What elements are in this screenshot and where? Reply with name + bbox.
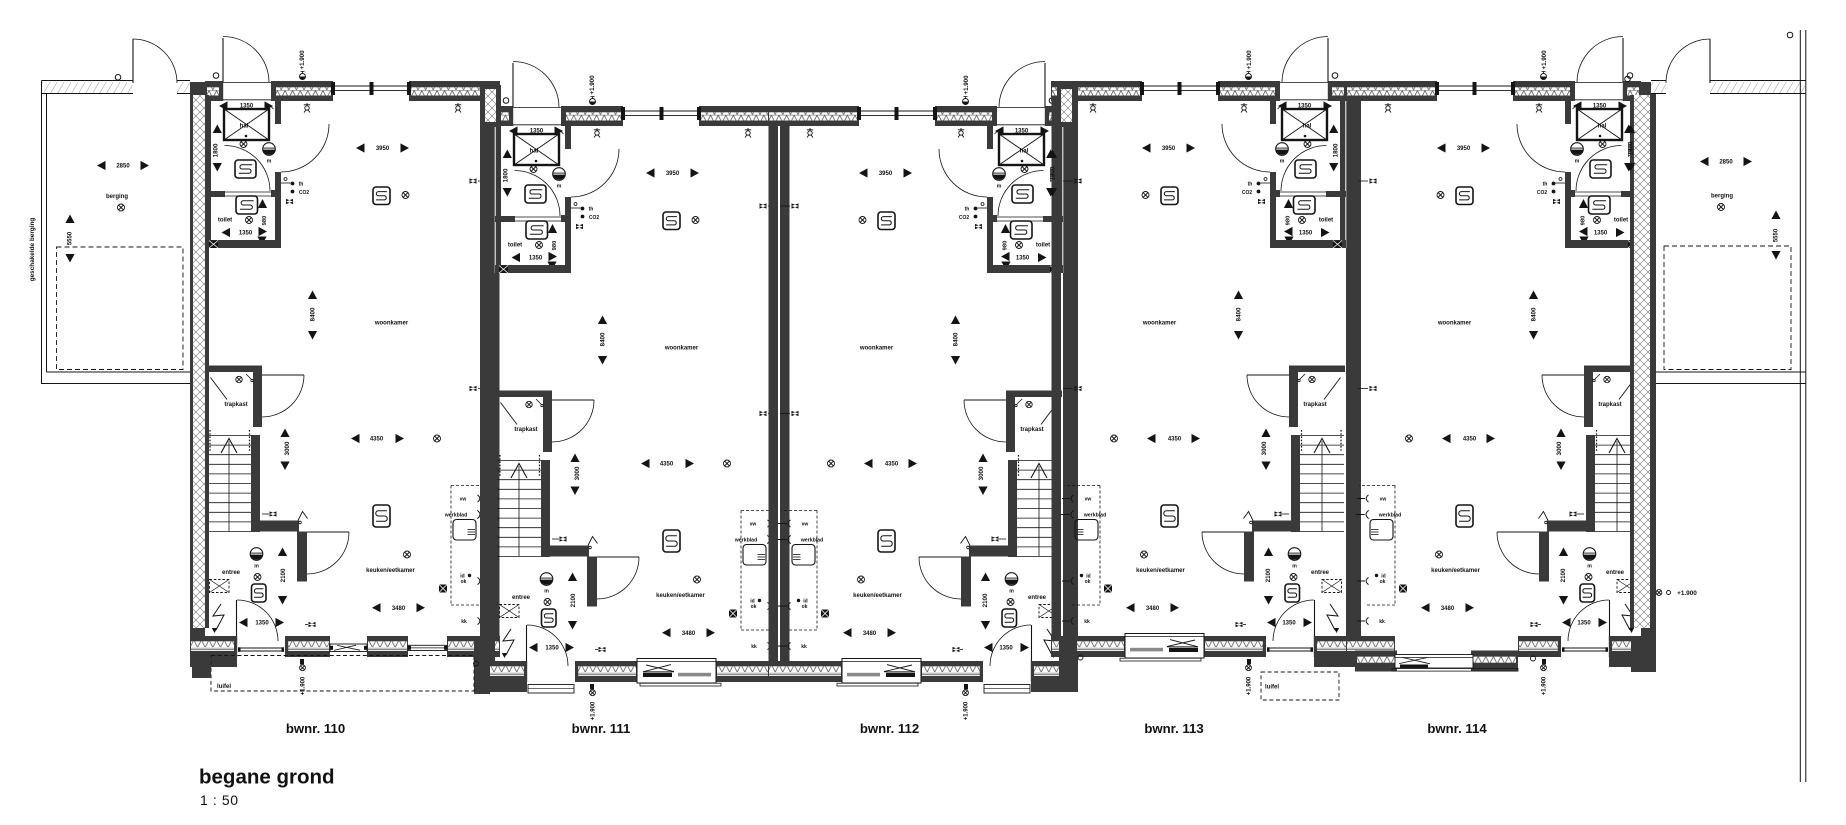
svg-text:8400: 8400 [600,332,607,346]
svg-text:werkblad: werkblad [800,537,824,543]
svg-text:ok: ok [802,604,808,610]
svg-text:980: 980 [1285,216,1291,226]
svg-text:kk: kk [1379,619,1385,625]
svg-text:1350: 1350 [240,104,254,110]
svg-text:keuken/eetkamer: keuken/eetkamer [656,593,705,599]
svg-text:hal: hal [1598,124,1607,130]
svg-text:1350: 1350 [1298,104,1312,110]
svg-text:ok: ok [1380,579,1386,585]
svg-text:980: 980 [552,241,558,251]
svg-text:trapkast: trapkast [1020,427,1043,433]
svg-text:bwnr. 114: bwnr. 114 [1427,721,1487,736]
svg-text:th: th [589,206,594,212]
svg-text:2850: 2850 [1719,160,1733,166]
svg-text:trapkast: trapkast [1303,402,1326,408]
svg-text:bwnr. 113: bwnr. 113 [1144,721,1203,736]
svg-text:4350: 4350 [660,462,674,468]
svg-text:3480: 3480 [392,606,406,612]
svg-text:2850: 2850 [116,164,130,170]
svg-text:+1.900: +1.900 [963,75,970,95]
svg-text:CO2: CO2 [1242,190,1253,196]
svg-text:hal: hal [240,124,249,130]
svg-text:woonkamer: woonkamer [1142,321,1177,327]
svg-text:3000: 3000 [574,466,581,480]
svg-text:trapkast: trapkast [1598,402,1621,408]
svg-text:2100: 2100 [570,593,577,607]
svg-text:keuken/eetkamer: keuken/eetkamer [853,593,902,599]
svg-text:ok: ok [461,579,467,585]
svg-text:m: m [254,563,259,569]
svg-text:berging: berging [106,194,128,200]
svg-text:kk: kk [461,619,467,625]
svg-text:m: m [267,158,272,164]
svg-text:keuken/eetkamer: keuken/eetkamer [1136,568,1185,574]
svg-text:4350: 4350 [1463,437,1477,443]
svg-text:vw: vw [802,521,809,527]
svg-text:entree: entree [1028,595,1047,601]
svg-text:1800: 1800 [1050,166,1057,180]
svg-text:3480: 3480 [1441,606,1455,612]
svg-text:4350: 4350 [1168,437,1182,443]
svg-text:3000: 3000 [1261,441,1268,455]
svg-text:kk: kk [801,644,807,650]
svg-text:1350: 1350 [239,231,253,237]
svg-text:begane grond: begane grond [199,765,335,788]
svg-text:m: m [1009,588,1014,594]
svg-text:3480: 3480 [863,631,877,637]
svg-text:+1.900: +1.900 [964,701,970,720]
svg-text:4350: 4350 [370,437,384,443]
svg-text:m: m [1575,158,1580,164]
svg-text:3000: 3000 [978,466,985,480]
svg-text:4350: 4350 [885,462,899,468]
svg-text:1350: 1350 [545,646,559,652]
svg-text:1350: 1350 [999,646,1013,652]
svg-text:3000: 3000 [1556,441,1563,455]
svg-text:keuken/eetkamer: keuken/eetkamer [366,568,415,574]
svg-text:1800: 1800 [213,143,220,157]
svg-text:2100: 2100 [1560,568,1567,582]
svg-text:m: m [1587,563,1592,569]
svg-text:hal: hal [1020,149,1029,155]
svg-text:bwnr. 112: bwnr. 112 [860,721,919,736]
svg-text:entree: entree [1606,570,1625,576]
svg-text:+1.900: +1.900 [1247,676,1253,695]
svg-text:entree: entree [1311,570,1330,576]
svg-text:trapkast: trapkast [514,427,537,433]
svg-text:1350: 1350 [1299,231,1313,237]
svg-text:m: m [544,588,549,594]
svg-text:1350: 1350 [1282,621,1296,627]
svg-text:980: 980 [1580,216,1586,226]
svg-text:8400: 8400 [1236,307,1243,321]
svg-text:toilet: toilet [1614,218,1628,224]
svg-text:th: th [1543,181,1548,187]
svg-text:bwnr. 111: bwnr. 111 [572,721,631,736]
svg-text:1350: 1350 [1594,231,1608,237]
svg-text:1350: 1350 [1016,256,1030,262]
svg-text:woonkamer: woonkamer [859,346,894,352]
svg-text:kk: kk [1084,619,1090,625]
svg-text:3000: 3000 [284,441,291,455]
svg-text:8400: 8400 [1531,307,1538,321]
svg-text:CO2: CO2 [589,215,600,221]
svg-text:toilet: toilet [218,218,232,224]
svg-text:1350: 1350 [1015,129,1029,135]
svg-text:980: 980 [1002,241,1008,251]
svg-text:m: m [1292,563,1297,569]
svg-text:keuken/eetkamer: keuken/eetkamer [1431,568,1480,574]
svg-text:hal: hal [1303,124,1312,130]
svg-text:3950: 3950 [1162,146,1176,152]
svg-text:+1.900: +1.900 [1542,676,1548,695]
svg-text:2100: 2100 [280,568,287,582]
svg-text:3950: 3950 [1457,146,1471,152]
svg-text:vw: vw [1380,496,1387,502]
svg-text:luifel: luifel [217,684,231,690]
svg-text:ok: ok [1085,579,1091,585]
svg-text:CO2: CO2 [299,190,310,196]
svg-text:5550: 5550 [1774,228,1780,242]
svg-text:CO2: CO2 [1537,190,1548,196]
svg-text:toilet: toilet [1036,243,1050,249]
svg-text:1800: 1800 [1333,143,1340,157]
svg-text:werkblad: werkblad [734,537,758,543]
svg-text:werkblad: werkblad [1378,512,1402,518]
svg-text:toilet: toilet [1319,218,1333,224]
svg-text:980: 980 [262,216,268,226]
svg-text:entree: entree [222,570,241,576]
svg-text:m: m [1280,158,1285,164]
svg-text:1800: 1800 [1628,141,1635,155]
svg-text:kk: kk [751,644,757,650]
svg-text:vw: vw [460,496,467,502]
svg-text:+1.900: +1.900 [299,50,306,70]
svg-text:3480: 3480 [1146,606,1160,612]
svg-text:m: m [997,183,1002,189]
svg-text:vw: vw [750,521,757,527]
svg-text:8400: 8400 [310,307,317,321]
svg-text:toilet: toilet [508,243,522,249]
svg-text:m: m [557,183,562,189]
svg-text:+1.900: +1.900 [1541,50,1548,70]
svg-text:5550: 5550 [68,231,74,245]
svg-text:1350: 1350 [1577,621,1591,627]
svg-text:trapkast: trapkast [224,402,247,408]
svg-text:hal: hal [530,149,539,155]
svg-text:3950: 3950 [879,171,893,177]
svg-text:th: th [1248,181,1253,187]
svg-text:vw: vw [1085,496,1092,502]
svg-text:woonkamer: woonkamer [1437,321,1472,327]
svg-text:CO2: CO2 [959,215,970,221]
svg-text:+1.900: +1.900 [1246,50,1253,70]
svg-text:3950: 3950 [376,146,390,152]
svg-text:2100: 2100 [1265,568,1272,582]
svg-text:1 : 50: 1 : 50 [200,792,239,808]
svg-text:1350: 1350 [1593,104,1607,110]
svg-text:werkblad: werkblad [444,512,468,518]
svg-text:1350: 1350 [530,129,544,135]
svg-text:1350: 1350 [529,256,543,262]
svg-text:+1.900: +1.900 [591,701,597,720]
svg-text:woonkamer: woonkamer [374,321,409,327]
svg-text:+1.900: +1.900 [301,676,307,695]
svg-text:1800: 1800 [503,168,510,182]
svg-text:th: th [299,181,304,187]
svg-text:+1.900: +1.900 [589,75,596,95]
svg-text:luifel: luifel [1265,685,1279,691]
svg-text:werkblad: werkblad [1083,512,1107,518]
svg-text:1350: 1350 [255,621,269,627]
svg-text:2100: 2100 [982,593,989,607]
svg-text:3480: 3480 [682,631,696,637]
svg-text:bwnr. 110: bwnr. 110 [286,721,345,736]
svg-text:3950: 3950 [666,171,680,177]
svg-text:8400: 8400 [953,332,960,346]
svg-text:geschakelde berging: geschakelde berging [29,218,36,282]
svg-text:th: th [965,206,970,212]
svg-text:berging: berging [1711,194,1733,200]
svg-text:+1.900: +1.900 [1677,590,1697,597]
svg-text:entree: entree [512,595,531,601]
svg-text:woonkamer: woonkamer [664,346,699,352]
svg-text:ok: ok [751,604,757,610]
